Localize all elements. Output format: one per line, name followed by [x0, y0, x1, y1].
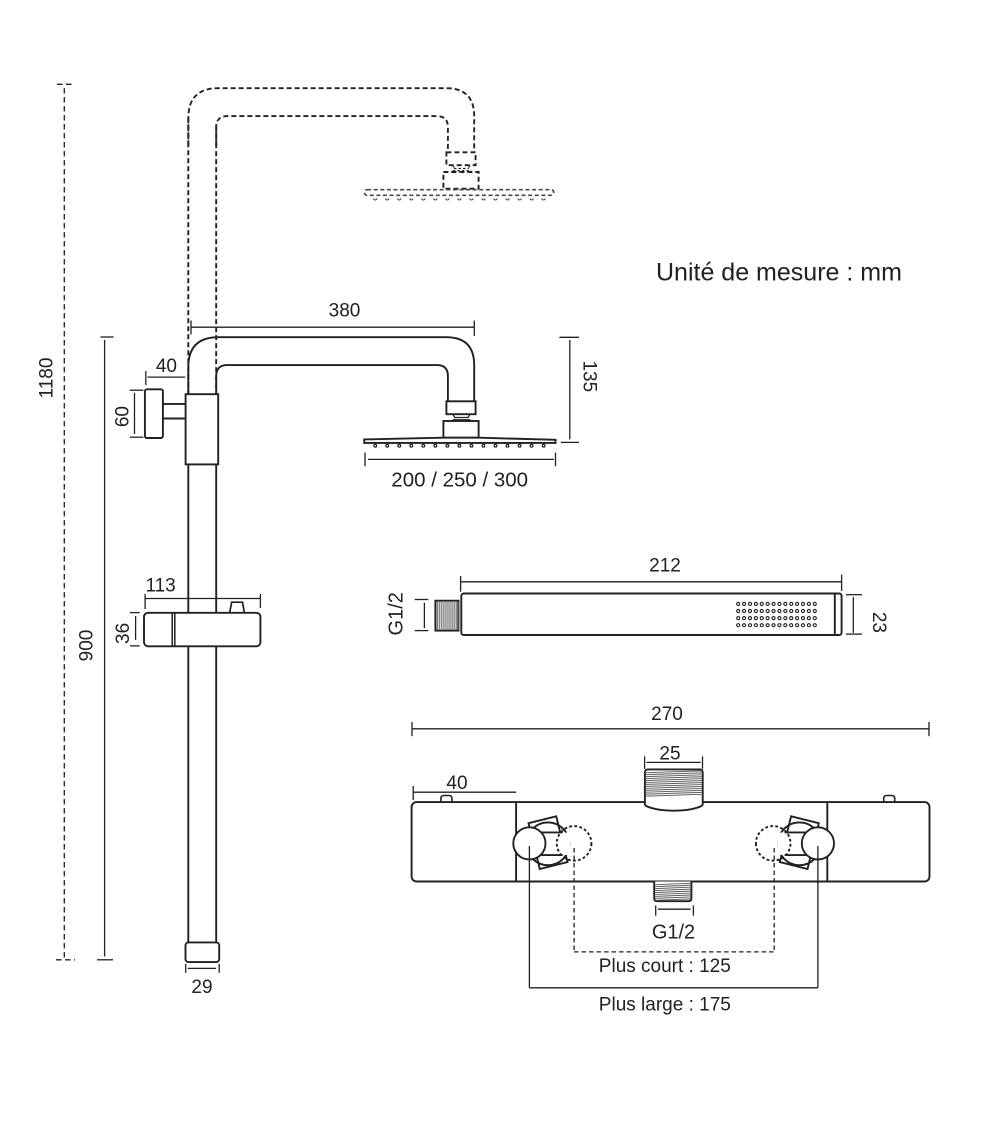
svg-text:60: 60	[112, 406, 133, 427]
svg-text:G1/2: G1/2	[386, 592, 408, 635]
svg-text:270: 270	[651, 704, 683, 725]
svg-text:Plus large : 175: Plus large : 175	[599, 994, 731, 1015]
svg-text:36: 36	[113, 623, 134, 644]
svg-text:113: 113	[145, 575, 175, 596]
svg-text:G1/2: G1/2	[652, 922, 695, 944]
svg-text:1180: 1180	[37, 358, 58, 399]
svg-text:25: 25	[659, 743, 680, 764]
svg-text:900: 900	[76, 630, 97, 662]
svg-text:Plus court : 125: Plus court : 125	[599, 956, 731, 977]
svg-text:380: 380	[329, 301, 361, 322]
svg-text:29: 29	[191, 977, 212, 998]
svg-text:Unité de mesure : mm: Unité de mesure : mm	[656, 259, 902, 287]
svg-text:40: 40	[156, 356, 177, 377]
svg-text:40: 40	[446, 773, 467, 794]
svg-text:135: 135	[579, 360, 600, 392]
svg-text:200 / 250 / 300: 200 / 250 / 300	[391, 468, 528, 491]
svg-text:23: 23	[868, 612, 889, 633]
svg-text:212: 212	[649, 556, 681, 577]
